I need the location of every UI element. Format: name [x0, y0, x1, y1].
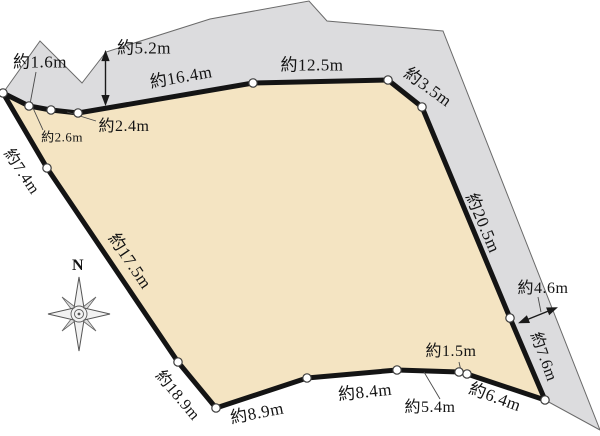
measurement-label-5-4m: 約5.4m [405, 400, 456, 416]
measurement-label-12-5m: 約12.5m [281, 57, 344, 74]
measurement-label-1-6m: 約1.6m [13, 54, 67, 71]
compass-rose [48, 277, 110, 351]
vertex-dot [174, 358, 182, 366]
land-plot-diagram: 約1.6m 約5.2m 約16.4m 約12.5m 約3.5m 約20.5m 約… [0, 0, 600, 436]
compass-center-dot [78, 313, 81, 316]
compass-north-label: N [72, 258, 84, 274]
vertex-dot [393, 366, 401, 374]
leader-line-5-4m [424, 372, 440, 399]
vertex-dot [455, 368, 463, 376]
measurement-label-4-6m: 約4.6m [518, 281, 569, 297]
vertex-dot [74, 109, 82, 117]
vertex-dot [47, 106, 55, 114]
measurement-label-2-4m: 約2.4m [99, 119, 150, 135]
vertex-dot [463, 370, 471, 378]
vertex-dot [43, 164, 51, 172]
measurement-label-2-6m: 約2.6m [41, 131, 83, 144]
vertex-dot [384, 76, 392, 84]
vertex-dot [303, 374, 311, 382]
vertex-dot [212, 404, 220, 412]
measurement-label-1-5m: 約1.5m [426, 344, 477, 360]
vertex-dot [418, 103, 426, 111]
measurement-label-5-2m: 約5.2m [117, 40, 171, 57]
vertex-dot [249, 79, 257, 87]
vertex-dot [541, 396, 549, 404]
vertex-dot [506, 314, 514, 322]
vertex-dot [0, 89, 7, 97]
vertex-dot [25, 102, 33, 110]
